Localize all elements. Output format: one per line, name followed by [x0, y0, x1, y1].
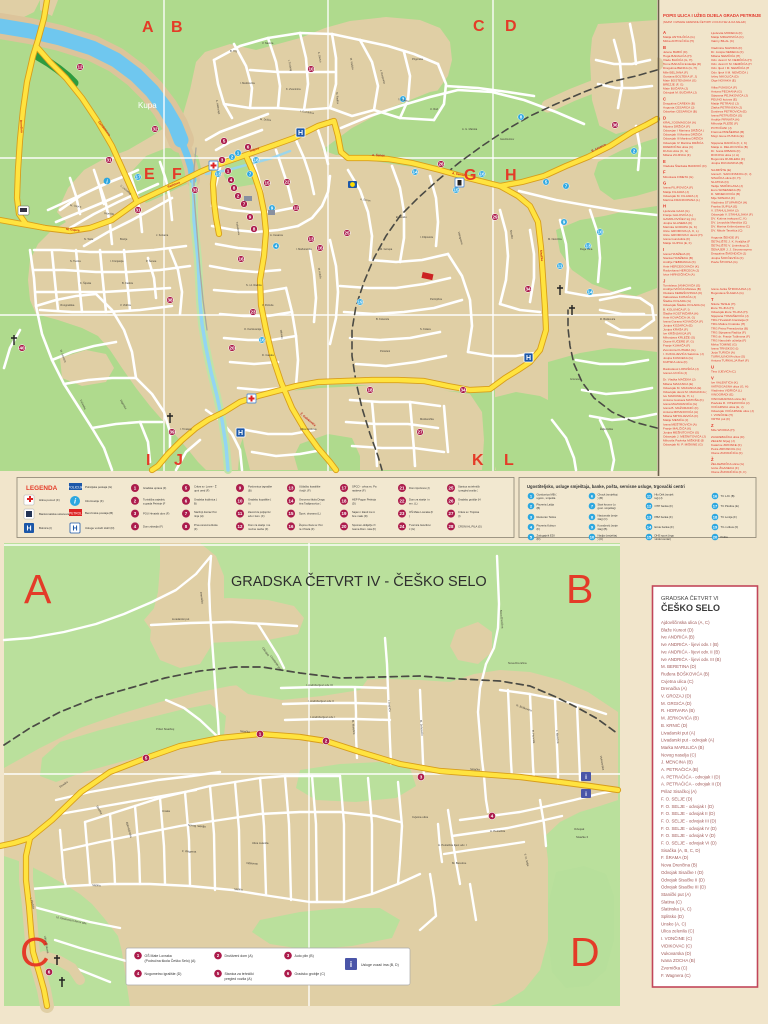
svg-text:ČEŠKO SELO: ČEŠKO SELO — [661, 602, 720, 613]
svg-text:KUPSKA ulica (F): KUPSKA ulica (F) — [663, 360, 687, 364]
svg-text:M. Nemčića: M. Nemčića — [548, 237, 562, 241]
svg-text:1: 1 — [259, 732, 262, 737]
svg-text:B: B — [566, 566, 593, 612]
svg-text:33: 33 — [192, 188, 198, 193]
svg-text:Sisačka: Sisačka — [470, 767, 480, 772]
svg-text:štaj) (B): štaj) (B) — [598, 527, 608, 531]
svg-text:Mošćenička: Mošćenička — [420, 417, 434, 421]
svg-text:Odvojak: Odvojak — [574, 827, 585, 831]
svg-text:Ive ANDRIĆA - lijevi odv. III: Ive ANDRIĆA - lijevi odv. III (B) — [661, 657, 721, 662]
svg-text:Prilaz Sisačkoj: Prilaz Sisačkoj — [156, 727, 175, 731]
svg-text:B): B) — [194, 501, 197, 505]
svg-text:vinski centar): vinski centar) — [655, 537, 672, 541]
svg-text:Dom za starije i n: Dom za starije i n — [409, 497, 430, 501]
svg-text:A. Cesarca: A. Cesarca — [270, 233, 283, 237]
svg-text:B. KRNIĆ (D): B. KRNIĆ (D) — [661, 723, 688, 728]
svg-text:Benzinska postaja (B): Benzinska postaja (B) — [85, 511, 113, 515]
svg-text:23: 23 — [250, 310, 256, 315]
svg-text:4: 4 — [275, 244, 278, 249]
svg-text:F. ŠRAMA (D): F. ŠRAMA (D) — [661, 855, 689, 860]
svg-text:H: H — [298, 130, 303, 137]
svg-text:32: 32 — [152, 127, 158, 132]
svg-text:F. O. SELJE - odvojak IV (D): F. O. SELJE - odvojak IV (D) — [661, 826, 717, 831]
svg-text:I. Mažuranića: I. Mažuranića — [296, 247, 312, 251]
svg-text:Erste banka (F): Erste banka (F) — [655, 525, 674, 529]
svg-text:PBZ banka (F): PBZ banka (F) — [655, 515, 673, 519]
svg-text:G: G — [464, 167, 476, 184]
svg-text:16: 16 — [259, 338, 265, 343]
svg-text:K. Zvonimira: K. Zvonimira — [286, 87, 301, 91]
svg-text:raskeve (F): raskeve (F) — [352, 489, 366, 493]
svg-text:9: 9 — [249, 215, 252, 220]
svg-text:V. Počuče: V. Počuče — [262, 303, 274, 307]
svg-text:Stanica za tehnički: Stanica za tehnički — [225, 972, 254, 976]
svg-text:i knjiž. (F): i knjiž. (F) — [299, 489, 311, 493]
svg-text:moćne osobe (F): moćne osobe (F) — [248, 527, 268, 531]
svg-text:Slatina (C): Slatina (C) — [661, 899, 682, 904]
svg-text:25: 25 — [449, 486, 454, 491]
svg-text:F. Wagnera: F. Wagnera — [182, 849, 197, 854]
svg-text:Mile WOODA (H): Mile WOODA (H) — [711, 428, 735, 432]
svg-text:18: 18 — [253, 158, 259, 163]
svg-text:F. O. SELJE - odvojak V (D): F. O. SELJE - odvojak V (D) — [661, 833, 716, 838]
svg-text:Đ. Szabo: Đ. Szabo — [396, 215, 407, 219]
svg-text:V. GROZAJ (D): V. GROZAJ (D) — [661, 694, 692, 699]
svg-text:Cvjetna ulica (C): Cvjetna ulica (C) — [661, 679, 694, 684]
svg-text:R. Boškovića: R. Boškovića — [600, 317, 616, 321]
svg-text:Marka MARULIĆA (B): Marka MARULIĆA (B) — [661, 745, 704, 750]
svg-text:Brezje: Brezje — [120, 237, 128, 241]
svg-text:D. Careka: D. Careka — [262, 353, 274, 357]
svg-text:taj) (J): taj) (J) — [655, 496, 663, 500]
svg-text:40: 40 — [19, 346, 25, 351]
svg-text:1: 1 — [227, 169, 230, 174]
svg-text:V. Vidrića: V. Vidrića — [120, 303, 131, 307]
svg-text:13: 13 — [289, 486, 294, 491]
svg-text:edu i šum. (F): edu i šum. (F) — [248, 514, 265, 518]
svg-text:Gradska uprava (F): Gradska uprava (F) — [143, 486, 166, 490]
svg-text:Slatina: Slatina — [234, 887, 243, 891]
svg-text:17: 17 — [713, 503, 718, 508]
svg-text:Sajam i štand za ro: Sajam i štand za ro — [352, 510, 376, 514]
svg-text:13: 13 — [215, 172, 221, 177]
svg-text:A. PETRAČIĆA - odvojak I (D): A. PETRAČIĆA - odvojak I (D) — [661, 774, 721, 779]
svg-text:10: 10 — [308, 67, 314, 72]
svg-text:Učilačko kazalište: Učilačko kazalište — [299, 485, 321, 489]
svg-text:7: 7 — [565, 184, 568, 189]
svg-text:Odavšan CESARICA (B): Odavšan CESARICA (B) — [663, 110, 697, 114]
svg-text:VIDIKOVAC (C): VIDIKOVAC (C) — [661, 943, 692, 948]
svg-text:Zavod za poljoprivr: Zavod za poljoprivr — [248, 510, 271, 514]
svg-text:Ugostiteljsko, usluge smještaj: Ugostiteljsko, usluge smještaja, banke, … — [527, 484, 685, 489]
svg-text:4: 4 — [491, 814, 494, 819]
svg-text:27: 27 — [417, 430, 423, 435]
svg-text:Milana ZUJINCA (F): Milana ZUJINCA (F) — [663, 153, 691, 157]
svg-text:tvama Dom. rata (F): tvama Dom. rata (F) — [352, 527, 376, 531]
svg-text:Pavla ŠTOOSA (G): Pavla ŠTOOSA (G) — [711, 259, 738, 264]
svg-text:Odvojak Sisačke II (D): Odvojak Sisačke II (D) — [661, 877, 705, 882]
svg-text:14: 14 — [289, 498, 294, 503]
svg-text:Ulica zelenila (C): Ulica zelenila (C) — [661, 929, 695, 934]
svg-text:31: 31 — [106, 158, 112, 163]
svg-text:2: 2 — [237, 194, 240, 199]
svg-text:F. O. SELJE - odvojak VI (D): F. O. SELJE - odvojak VI (D) — [661, 841, 717, 846]
svg-text:M. BERETINA (D): M. BERETINA (D) — [661, 664, 697, 669]
svg-text:Tina UJEVIĆA (C): Tina UJEVIĆA (C) — [711, 369, 736, 374]
svg-text:Slatina: Slatina — [92, 883, 101, 887]
svg-text:TC Plodine (E): TC Plodine (E) — [721, 504, 739, 508]
svg-text:F. O. SELJE - odvojak II (D): F. O. SELJE - odvojak II (D) — [661, 811, 715, 816]
svg-text:U. Rod: U. Rod — [430, 107, 439, 111]
svg-text:(D): (D) — [352, 501, 356, 505]
svg-text:A: A — [142, 19, 154, 36]
svg-text:Bolnica (I): Bolnica (I) — [39, 526, 52, 530]
svg-text:Ulica zelenila: Ulica zelenila — [252, 841, 269, 845]
svg-text:Odvojak Sisačke I (D): Odvojak Sisačke I (D) — [661, 870, 704, 875]
svg-text:Restoran Tešca: Restoran Tešca — [537, 515, 557, 519]
svg-text:7: 7 — [249, 172, 252, 177]
svg-text:J. MENCINA (B): J. MENCINA (B) — [661, 760, 693, 765]
svg-text:A. G. Matoša: A. G. Matoša — [462, 127, 478, 131]
svg-text:Nogometno igralište (D): Nogometno igralište (D) — [145, 972, 182, 976]
svg-text:em. (L): em. (L) — [409, 501, 418, 505]
svg-text:12: 12 — [238, 524, 243, 529]
svg-text:Informacije (F): Informacije (F) — [85, 499, 104, 503]
svg-text:M. Gorupa: M. Gorupa — [380, 247, 393, 251]
svg-text:19: 19 — [713, 524, 718, 529]
svg-text:I. Trnskog: I. Trnskog — [180, 427, 192, 431]
svg-text:Ivana LUCIĆA (J): Ivana LUCIĆA (J) — [663, 370, 687, 375]
svg-text:N. Tesle: N. Tesle — [84, 237, 94, 241]
svg-text:Gromova: Gromova — [570, 377, 581, 381]
svg-text:V. Nazora: V. Nazora — [262, 41, 274, 45]
svg-text:27: 27 — [449, 511, 454, 516]
svg-text:Slatinska (A, C): Slatinska (A, C) — [661, 907, 692, 912]
svg-text:14: 14 — [587, 290, 593, 295]
svg-text:18: 18 — [342, 498, 347, 503]
svg-text:Odvojak M. BUČARA (J): Odvojak M. BUČARA (J) — [663, 90, 697, 95]
svg-text:Gradsko kupalište (: Gradsko kupalište ( — [248, 497, 271, 501]
svg-text:D: D — [505, 18, 517, 35]
svg-text:Društveni dom (A): Društveni dom (A) — [225, 954, 253, 958]
svg-text:E: E — [144, 166, 155, 183]
svg-text:Starčnji dvorac Pet: Starčnji dvorac Pet — [194, 510, 217, 514]
svg-text:34: 34 — [525, 287, 531, 292]
svg-text:Policijska postaja (G): Policijska postaja (G) — [85, 485, 112, 489]
svg-text:Unska: Unska — [162, 809, 170, 813]
svg-text:bne male (D): bne male (D) — [352, 514, 368, 518]
svg-text:Petrinjčica: Petrinjčica — [430, 297, 443, 301]
svg-text:Duga ulica: Duga ulica — [580, 247, 593, 251]
svg-text:18: 18 — [713, 514, 718, 519]
svg-text:2: 2 — [325, 739, 328, 744]
svg-text:gost. smještaj): gost. smještaj) — [598, 506, 616, 510]
svg-text:20: 20 — [229, 346, 235, 351]
svg-text:4: 4 — [230, 178, 233, 183]
svg-text:OŠ Mate Lovraka: OŠ Mate Lovraka — [145, 953, 172, 958]
svg-text:Dom zdravlja (F): Dom zdravlja (F) — [143, 524, 163, 528]
svg-text:OTP banka (F): OTP banka (F) — [655, 504, 674, 508]
svg-text:Novog naselja (C): Novog naselja (C) — [661, 752, 697, 757]
svg-text:Otane ZUPANČIĆA (F): Otane ZUPANČIĆA (F) — [711, 450, 743, 455]
svg-text:Hitna pomoć (F): Hitna pomoć (F) — [39, 498, 60, 502]
svg-text:(Područna škola Češko Selo) (A: (Područna škola Češko Selo) (A) — [145, 958, 196, 963]
svg-text:I. Krsnjavija: I. Krsnjavija — [110, 259, 124, 263]
svg-text:Livadarski put - odvojak (A): Livadarski put - odvojak (A) — [661, 738, 715, 743]
svg-text:Bogoslava ŠULEKA (G): Bogoslava ŠULEKA (G) — [711, 290, 744, 295]
svg-text:pregled vozila (A): pregled vozila (A) — [225, 977, 252, 981]
svg-text:a grada Petrinje (F: a grada Petrinje (F — [143, 501, 166, 505]
svg-text:H: H — [238, 430, 243, 437]
svg-text:Osnovna škola Dragu: Osnovna škola Dragu — [299, 497, 325, 501]
svg-text:Gradska knjižnica (: Gradska knjižnica ( — [194, 497, 217, 501]
svg-text:A. PETRAČIĆA - odvojak II (D): A. PETRAČIĆA - odvojak II (D) — [661, 782, 722, 787]
svg-text:Gradsko groblje (H: Gradsko groblje (H — [458, 497, 481, 501]
svg-text:Poslovnica izgradbe: Poslovnica izgradbe — [248, 485, 273, 489]
svg-text:15: 15 — [264, 181, 270, 186]
svg-text:Vidikovac: Vidikovac — [246, 861, 259, 866]
svg-text:) (B): ) (B) — [598, 496, 604, 500]
svg-text:29: 29 — [492, 215, 498, 220]
svg-text:Sisačka (A, B, C, D): Sisačka (A, B, C, D) — [661, 848, 701, 853]
svg-text:26: 26 — [438, 162, 444, 167]
svg-text:i pregled vozila (: i pregled vozila ( — [458, 489, 478, 493]
svg-text:Msgr. Euve PUSICA (E): Msgr. Euve PUSICA (E) — [711, 134, 744, 138]
svg-text:38: 38 — [167, 298, 173, 303]
svg-text:Vladeka Šlardaka BADROĆ (D): Vladeka Šlardaka BADROĆ (D) — [663, 163, 707, 168]
svg-text:14: 14 — [412, 170, 418, 175]
svg-text:I. Andriča lijevi odv. I: I. Andriča lijevi odv. I — [310, 715, 336, 719]
svg-text:R. HORVARA (B): R. HORVARA (B) — [661, 708, 695, 713]
svg-text:B. Kašića: B. Kašića — [122, 281, 134, 285]
svg-text:A): A) — [248, 501, 251, 505]
svg-text:Dom za starije i ne: Dom za starije i ne — [248, 523, 271, 527]
svg-text:(F): (F) — [194, 527, 198, 531]
svg-text:H: H — [72, 526, 77, 533]
svg-text:Blaže Kureot (D): Blaže Kureot (D) — [661, 627, 694, 632]
svg-text:12: 12 — [293, 206, 299, 211]
svg-text:15: 15 — [647, 534, 652, 539]
svg-text:Miroslava FIMETA (G): Miroslava FIMETA (G) — [663, 175, 693, 179]
svg-text:31: 31 — [135, 208, 141, 213]
svg-text:S. i A. Radića: S. i A. Radića — [246, 283, 262, 287]
svg-text:Nova Drenčina: Nova Drenčina — [508, 661, 527, 665]
svg-text:Stanica za tehničk: Stanica za tehničk — [458, 485, 480, 489]
svg-text:Splitsko (D): Splitsko (D) — [661, 914, 684, 919]
svg-text:Gavrilovićev: Gavrilovićev — [500, 137, 515, 141]
svg-text:36: 36 — [612, 123, 618, 128]
svg-text:Ive ANDRIĆA (B): Ive ANDRIĆA (B) — [661, 635, 695, 640]
svg-text:Gradsko groblje (C): Gradsko groblje (C) — [295, 972, 326, 976]
svg-text:5: 5 — [545, 180, 548, 185]
svg-text:F. O. SELJE - odvojak I (D): F. O. SELJE - odvojak I (D) — [661, 804, 714, 809]
svg-text:H: H — [505, 167, 517, 184]
svg-text:8: 8 — [233, 186, 236, 191]
svg-text:Potočani: Potočani — [380, 349, 391, 353]
svg-text:Crkva sv. Trojstva: Crkva sv. Trojstva — [458, 510, 480, 514]
svg-text:5: 5 — [223, 139, 226, 144]
svg-text:HEP Pogon Petrinja: HEP Pogon Petrinja — [352, 497, 376, 501]
svg-text:VRTNI put (F): VRTNI put (F) — [711, 417, 730, 421]
svg-text:i: i — [585, 791, 587, 798]
svg-text:J. Kozarca: J. Kozarca — [156, 233, 169, 237]
svg-text:Drenačka (A): Drenačka (A) — [661, 686, 687, 691]
svg-text:10: 10 — [238, 498, 243, 503]
svg-text:15: 15 — [453, 188, 459, 193]
svg-text:34: 34 — [460, 388, 466, 393]
svg-text:22: 22 — [400, 498, 405, 503]
svg-text:Olge NOVAKA (E): Olge NOVAKA (E) — [711, 78, 736, 82]
svg-text:1: 1 — [237, 151, 240, 156]
svg-text:C: C — [473, 18, 485, 35]
svg-text:3: 3 — [221, 158, 224, 163]
svg-text:8: 8 — [520, 115, 523, 120]
svg-text:19: 19 — [342, 511, 347, 516]
svg-text:Dom športova (J): Dom športova (J) — [409, 486, 430, 490]
svg-text:19: 19 — [357, 300, 363, 305]
svg-text:2: 2 — [633, 149, 636, 154]
svg-text:9: 9 — [271, 206, 274, 211]
svg-text:I: I — [146, 452, 150, 469]
svg-text:): ) — [458, 501, 459, 505]
svg-text:15: 15 — [289, 511, 294, 516]
svg-text:Josipa RUNJANINA (B): Josipa RUNJANINA (B) — [711, 161, 743, 165]
svg-text:16: 16 — [317, 246, 323, 251]
svg-text:Sisačke II: Sisačke II — [576, 835, 588, 839]
svg-text:11: 11 — [558, 264, 563, 269]
svg-text:Stanički put (A): Stanički put (A) — [661, 892, 691, 897]
svg-text:39: 39 — [169, 430, 175, 435]
svg-text:ra i Pavla (F): ra i Pavla (F) — [299, 527, 314, 531]
svg-text:Prilaz Sisačkoj (A): Prilaz Sisačkoj (A) — [661, 789, 697, 794]
svg-text:I. Andriča lijevi odv. II: I. Andriča lijevi odv. II — [308, 699, 334, 703]
svg-text:D: D — [570, 929, 600, 975]
svg-text:M. GRGIĆA (D): M. GRGIĆA (D) — [661, 701, 692, 706]
svg-text:i: i — [350, 960, 352, 969]
svg-text:(D): (D) — [537, 537, 541, 541]
svg-text:17: 17 — [342, 486, 347, 491]
svg-text:Vukovarska (D): Vukovarska (D) — [661, 951, 692, 956]
svg-text:Turistička zajednic: Turistička zajednic — [143, 497, 166, 501]
svg-text:POPIS ULICA I UŽEG DIJELA GRAD: POPIS ULICA I UŽEG DIJELA GRADA PETRINJE — [663, 13, 761, 18]
svg-text:TC LJC (B): TC LJC (B) — [721, 494, 735, 498]
svg-text:Otane ŽUPANČIĆA (K, F): Otane ŽUPANČIĆA (K, F) — [711, 469, 746, 474]
svg-text:26: 26 — [449, 498, 454, 503]
svg-text:(B): (B) — [537, 506, 541, 510]
svg-text:20: 20 — [713, 534, 718, 539]
svg-text:ugost., smješta: ugost., smješta — [537, 496, 556, 500]
svg-text:Mirka ANTOLČIĆA (H): Mirka ANTOLČIĆA (H) — [663, 38, 694, 43]
svg-text:S. Tucića: S. Tucića — [70, 259, 81, 263]
svg-text:Pošta: Pošta — [721, 535, 729, 539]
svg-text:A. Petračića lijevi odv. I: A. Petračića lijevi odv. I — [438, 843, 467, 847]
svg-text:Martina FRANKOPANA (L): Martina FRANKOPANA (L) — [663, 198, 700, 202]
svg-text:14: 14 — [647, 524, 652, 529]
svg-text:Vinogradska: Vinogradska — [60, 303, 75, 307]
svg-text:10: 10 — [590, 534, 595, 539]
svg-text:O. Keršovanija: O. Keršovanija — [244, 327, 262, 331]
svg-text:upni ured (F): upni ured (F) — [194, 489, 209, 493]
svg-text:Kupa: Kupa — [138, 101, 157, 110]
svg-text:(B): (B) — [248, 489, 252, 493]
svg-text:S. Kolara: S. Kolara — [420, 327, 431, 331]
svg-text:F. O. SELJE (D): F. O. SELJE (D) — [661, 796, 693, 801]
svg-text:Ive ANDRIĆA - lijevi odv. II (: Ive ANDRIĆA - lijevi odv. II (B) — [661, 649, 720, 654]
svg-text:Ulica Grobova: Ulica Grobova — [300, 427, 317, 431]
svg-text:A. Petračića: A. Petračića — [490, 829, 506, 833]
svg-text:CRONI HL PILA (G): CRONI HL PILA (G) — [458, 524, 482, 528]
svg-text:A. PETRAČIĆA (B): A. PETRAČIĆA (B) — [661, 767, 699, 772]
svg-text:štaj) (C): štaj) (C) — [598, 517, 608, 521]
svg-text:GRADSKA ČETVRT VI: GRADSKA ČETVRT VI — [661, 595, 719, 602]
svg-text:J: J — [174, 452, 183, 469]
svg-text:10: 10 — [597, 230, 603, 235]
svg-text:GRADSKA ČETVRT IV - ČEŠKO SELO: GRADSKA ČETVRT IV - ČEŠKO SELO — [231, 573, 487, 590]
svg-text:16: 16 — [713, 493, 718, 498]
svg-text:H: H — [526, 355, 531, 362]
svg-text:A: A — [24, 566, 52, 612]
svg-text:Ivice HIRNOČINĆA (A): Ivice HIRNOČINĆA (A) — [663, 271, 695, 276]
svg-text:Prigorska: Prigorska — [412, 57, 424, 61]
svg-text:16: 16 — [479, 172, 485, 177]
svg-text:24: 24 — [400, 524, 405, 529]
svg-text:L: L — [504, 452, 514, 469]
svg-text:B. Trg: B. Trg — [230, 49, 237, 53]
svg-text:23: 23 — [400, 511, 405, 516]
svg-text:25: 25 — [344, 231, 350, 236]
svg-text:I. Meštrovića: I. Meštrovića — [240, 81, 255, 85]
svg-text:Usluge vozač ima (B, D): Usluge vozač ima (B, D) — [361, 963, 399, 967]
svg-text:POLICIJA: POLICIJA — [68, 486, 84, 490]
svg-text:Odvojak Sisačke III (D): Odvojak Sisačke III (D) — [661, 885, 706, 890]
svg-text:Antuna TURKALJA RaA (F): Antuna TURKALJA RaA (F) — [711, 359, 749, 363]
svg-text:TC-i utikus (F): TC-i utikus (F) — [721, 525, 739, 529]
svg-text:DV. Nikole Tavelića (C): DV. Nikole Tavelića (C) — [711, 229, 742, 233]
svg-text:i: i — [585, 774, 587, 781]
svg-text:F. Wagnera (C): F. Wagnera (C) — [661, 973, 691, 978]
svg-text:F. O. SELJE - odvojak III (D): F. O. SELJE - odvojak III (D) — [661, 819, 717, 824]
svg-text:Ive ANDRIĆA - lijevi odv. I (B: Ive ANDRIĆA - lijevi odv. I (B) — [661, 642, 719, 647]
svg-text:Livadarski put: Livadarski put — [172, 617, 189, 621]
svg-text:11: 11 — [238, 511, 243, 516]
svg-text:Spomen-obilježje žr: Spomen-obilježje žr — [352, 523, 376, 527]
svg-text:SPCO - crkva sv. Pa: SPCO - crkva sv. Pa — [352, 485, 377, 489]
svg-text:21: 21 — [400, 486, 405, 491]
svg-text:M. Beretine: M. Beretine — [452, 861, 467, 865]
svg-text:M. JERKOVIĆA (B): M. JERKOVIĆA (B) — [661, 716, 699, 721]
svg-text:6: 6 — [48, 970, 51, 975]
svg-text:16: 16 — [238, 257, 244, 262]
svg-text:B: B — [171, 19, 183, 36]
svg-text:I. VONČINE (C): I. VONČINE (C) — [661, 936, 693, 941]
svg-text:3: 3 — [420, 775, 423, 780]
svg-text:B. Kolunića: B. Kolunića — [376, 317, 390, 321]
svg-text:22: 22 — [284, 180, 290, 185]
svg-text:tina Tadijanovića (: tina Tadijanovića ( — [299, 501, 321, 505]
svg-text:Unsko (A, C): Unsko (A, C) — [661, 921, 687, 926]
svg-text:PETROL: PETROL — [69, 512, 82, 516]
svg-text:): ) — [409, 514, 410, 518]
svg-text:H: H — [26, 526, 31, 533]
svg-text:K: K — [472, 452, 484, 469]
svg-text:I. Filipovića: I. Filipovića — [420, 235, 434, 239]
svg-text:Tvornica Gavrilovi: Tvornica Gavrilovi — [409, 523, 431, 527]
svg-text:20: 20 — [342, 524, 347, 529]
svg-text:TC Lonija (F): TC Lonija (F) — [721, 515, 737, 519]
svg-text:LEGENDA: LEGENDA — [26, 485, 58, 492]
svg-text:rinja (H): rinja (H) — [194, 514, 204, 518]
svg-text:Matije GUPCA (E, F): Matije GUPCA (E, F) — [663, 241, 692, 245]
